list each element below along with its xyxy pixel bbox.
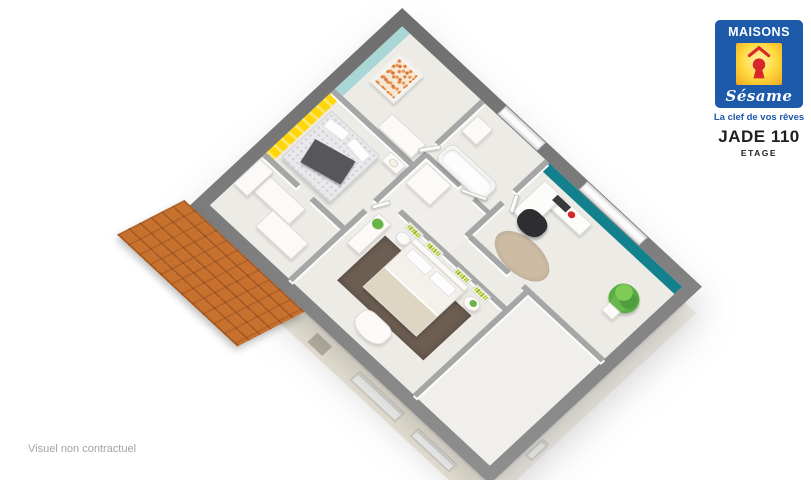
brand-logo: MAISONS Sésame bbox=[715, 20, 803, 108]
crib-bedding bbox=[374, 58, 419, 100]
brand-yellow-tile bbox=[736, 43, 782, 85]
brand-tagline: La clef de vos rêves bbox=[712, 112, 806, 123]
disclaimer-text: Visuel non contractuel bbox=[28, 443, 136, 455]
plan-title: JADE 110 bbox=[712, 127, 806, 147]
brand-name: MAISONS bbox=[728, 25, 790, 39]
page: MAISONS Sésame La clef de vos rêves JADE… bbox=[0, 0, 811, 480]
office-teal-wall bbox=[541, 163, 682, 294]
wall-band bbox=[190, 8, 702, 480]
floorplan-3d bbox=[190, 8, 702, 480]
plan-subtitle: ETAGE bbox=[712, 148, 806, 158]
brand-block: MAISONS Sésame La clef de vos rêves bbox=[712, 20, 806, 123]
floor bbox=[210, 26, 682, 465]
keyhole-roof-icon bbox=[744, 46, 774, 82]
facade-opening bbox=[307, 332, 332, 355]
brand-script-name: Sésame bbox=[726, 89, 793, 104]
plan-id-block: JADE 110 ETAGE bbox=[712, 127, 806, 158]
